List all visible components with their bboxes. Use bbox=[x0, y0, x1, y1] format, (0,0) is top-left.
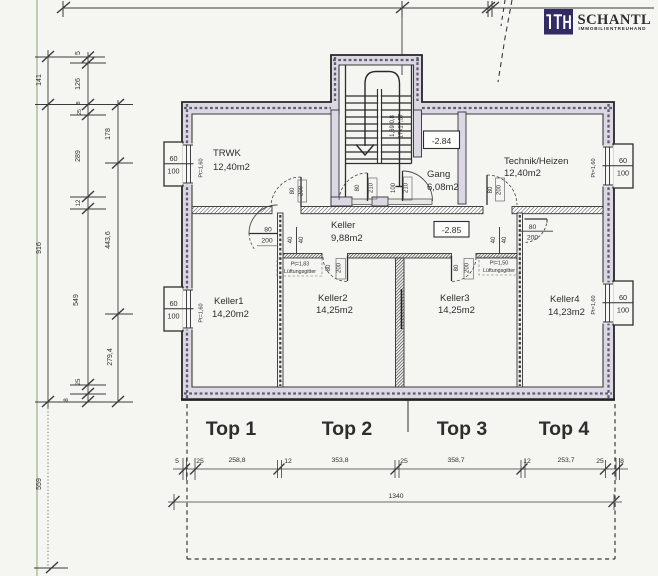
svg-text:-2.84: -2.84 bbox=[432, 136, 452, 146]
svg-text:60: 60 bbox=[169, 299, 177, 308]
svg-text:549: 549 bbox=[73, 294, 80, 306]
svg-text:Top 1: Top 1 bbox=[206, 418, 257, 440]
svg-text:Technik/Heizen: Technik/Heizen bbox=[504, 156, 568, 167]
svg-text:40: 40 bbox=[502, 236, 508, 243]
svg-text:5: 5 bbox=[75, 51, 82, 55]
svg-text:80: 80 bbox=[488, 186, 494, 193]
svg-text:80: 80 bbox=[355, 184, 361, 191]
svg-text:Pt=1,60: Pt=1,60 bbox=[199, 158, 205, 177]
svg-text:8: 8 bbox=[620, 458, 624, 465]
svg-text:178: 178 bbox=[105, 128, 112, 140]
svg-text:12: 12 bbox=[284, 458, 292, 465]
svg-text:80: 80 bbox=[529, 224, 537, 231]
svg-text:60: 60 bbox=[619, 156, 627, 165]
svg-text:200: 200 bbox=[261, 238, 273, 245]
svg-text:14,20m2: 14,20m2 bbox=[212, 309, 249, 320]
svg-text:9,88m2: 9,88m2 bbox=[331, 233, 363, 244]
svg-text:IMMOBILIENTREUHAND: IMMOBILIENTREUHAND bbox=[579, 26, 647, 31]
svg-text:Keller4: Keller4 bbox=[550, 294, 580, 305]
svg-text:5: 5 bbox=[175, 458, 179, 465]
svg-text:100: 100 bbox=[167, 167, 179, 176]
svg-text:Pt=1,60: Pt=1,60 bbox=[591, 158, 597, 177]
svg-text:200: 200 bbox=[465, 262, 471, 273]
svg-text:559: 559 bbox=[36, 478, 43, 490]
svg-text:12: 12 bbox=[76, 199, 82, 206]
svg-text:1340: 1340 bbox=[388, 493, 403, 500]
svg-text:100: 100 bbox=[617, 306, 629, 315]
svg-text:258,8: 258,8 bbox=[228, 457, 245, 464]
svg-text:TRWK: TRWK bbox=[213, 148, 241, 159]
svg-text:100: 100 bbox=[391, 182, 397, 193]
svg-text:8: 8 bbox=[76, 101, 82, 104]
svg-text:279,4: 279,4 bbox=[107, 348, 114, 366]
svg-text:210: 210 bbox=[404, 182, 410, 193]
svg-text:Pt=1,50: Pt=1,50 bbox=[490, 261, 508, 267]
svg-text:80: 80 bbox=[326, 264, 332, 271]
svg-text:141: 141 bbox=[36, 74, 43, 86]
svg-text:200: 200 bbox=[299, 185, 305, 196]
svg-text:25: 25 bbox=[596, 458, 604, 465]
svg-text:Lüftungsgitter: Lüftungsgitter bbox=[284, 269, 316, 275]
svg-text:60: 60 bbox=[169, 154, 177, 163]
svg-text:289: 289 bbox=[75, 150, 82, 162]
svg-text:Lüftungsgitter: Lüftungsgitter bbox=[483, 268, 515, 274]
svg-text:12,40m2: 12,40m2 bbox=[213, 162, 250, 173]
svg-text:17x17,57: 17x17,57 bbox=[399, 113, 405, 138]
svg-text:40: 40 bbox=[491, 236, 497, 243]
svg-text:6,08m2: 6,08m2 bbox=[427, 182, 459, 193]
svg-text:1,69 0,8: 1,69 0,8 bbox=[390, 114, 396, 136]
svg-text:Keller2: Keller2 bbox=[318, 293, 348, 304]
svg-text:14,25m2: 14,25m2 bbox=[316, 305, 353, 316]
svg-text:100: 100 bbox=[617, 169, 629, 178]
svg-text:443,6: 443,6 bbox=[105, 231, 112, 249]
svg-text:40: 40 bbox=[288, 236, 294, 243]
svg-text:Keller: Keller bbox=[331, 220, 355, 231]
svg-text:Top 2: Top 2 bbox=[322, 418, 373, 440]
svg-text:Top 3: Top 3 bbox=[437, 418, 488, 440]
svg-text:-2.85: -2.85 bbox=[442, 225, 462, 235]
svg-text:200: 200 bbox=[497, 184, 503, 195]
svg-text:358,7: 358,7 bbox=[447, 457, 464, 464]
svg-text:25: 25 bbox=[77, 109, 83, 115]
svg-text:210: 210 bbox=[369, 182, 375, 193]
svg-text:253,7: 253,7 bbox=[557, 457, 574, 464]
svg-text:40: 40 bbox=[299, 236, 305, 243]
svg-text:Pt=1,60: Pt=1,60 bbox=[199, 303, 205, 322]
svg-text:Keller3: Keller3 bbox=[440, 293, 470, 304]
svg-text:60: 60 bbox=[619, 293, 627, 302]
svg-text:200: 200 bbox=[527, 235, 539, 242]
svg-text:25: 25 bbox=[196, 458, 204, 465]
svg-text:80: 80 bbox=[454, 264, 460, 271]
svg-text:916: 916 bbox=[36, 242, 43, 254]
svg-text:126: 126 bbox=[75, 78, 82, 90]
svg-text:80: 80 bbox=[264, 227, 272, 234]
svg-text:Top 4: Top 4 bbox=[539, 418, 590, 440]
svg-text:14,23m2: 14,23m2 bbox=[548, 307, 585, 318]
svg-text:Gang: Gang bbox=[427, 169, 450, 180]
svg-text:12: 12 bbox=[523, 458, 531, 465]
svg-text:353,8: 353,8 bbox=[331, 457, 348, 464]
svg-text:Pt=1,83: Pt=1,83 bbox=[291, 262, 309, 268]
svg-text:12,40m2: 12,40m2 bbox=[504, 168, 541, 179]
svg-text:80: 80 bbox=[290, 187, 296, 194]
svg-text:25: 25 bbox=[76, 378, 82, 385]
svg-text:25: 25 bbox=[400, 458, 408, 465]
svg-text:Keller1: Keller1 bbox=[214, 296, 244, 307]
svg-text:200: 200 bbox=[337, 262, 343, 273]
svg-text:14,25m2: 14,25m2 bbox=[438, 305, 475, 316]
svg-text:Pt=1,60: Pt=1,60 bbox=[591, 295, 597, 314]
svg-text:100: 100 bbox=[167, 312, 179, 321]
